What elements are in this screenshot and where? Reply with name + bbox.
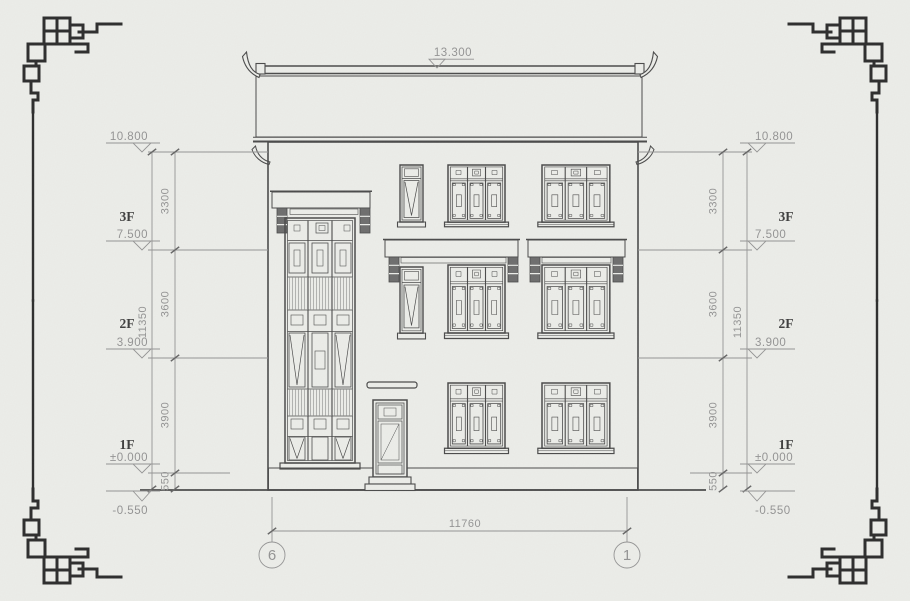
roof-ridge bbox=[260, 66, 640, 74]
svg-text:10.800: 10.800 bbox=[110, 131, 148, 143]
window-1f-center bbox=[445, 383, 509, 454]
entry-step-lower bbox=[365, 484, 415, 491]
floor-label-1f-right: 1F bbox=[779, 437, 794, 452]
floor-label-3f-right: 3F bbox=[779, 209, 794, 224]
elevation-marker-ground-left: -0.550 bbox=[106, 491, 160, 517]
svg-text:7.500: 7.500 bbox=[117, 229, 148, 241]
total-height-dim-left: 11350 bbox=[137, 306, 149, 338]
segment-3600-right: 3600 bbox=[708, 291, 720, 317]
ridge-elevation-value: 13.300 bbox=[434, 47, 472, 59]
facade-wall bbox=[268, 142, 638, 490]
floor-label-2f-right: 2F bbox=[779, 316, 794, 331]
roof bbox=[243, 52, 658, 165]
window-3f-right bbox=[538, 165, 614, 227]
segment-550-left: 550 bbox=[160, 471, 172, 491]
svg-text:-0.550: -0.550 bbox=[112, 505, 148, 517]
elevation-marker-eave-right: 10.800 bbox=[740, 131, 795, 152]
awning-right-bracket-right bbox=[613, 257, 623, 282]
svg-text:7.500: 7.500 bbox=[755, 229, 786, 241]
segment-3900-left: 3900 bbox=[160, 402, 172, 428]
bay-bracket-right bbox=[360, 208, 370, 233]
elevation-marker-1f-right: ±0.000 bbox=[740, 452, 795, 473]
svg-text:±0.000: ±0.000 bbox=[110, 452, 148, 464]
border-corner-ornaments bbox=[24, 18, 886, 583]
segment-3600-left: 3600 bbox=[160, 291, 172, 317]
door-canopy-slab bbox=[367, 382, 417, 388]
elevation-marker-3f-right: 7.500 bbox=[740, 229, 795, 250]
corner-ornament-top-right bbox=[789, 18, 886, 301]
segment-3300-left: 3300 bbox=[160, 188, 172, 214]
floor-label-1f-left: 1F bbox=[120, 437, 135, 452]
svg-text:±0.000: ±0.000 bbox=[755, 452, 793, 464]
total-width-dim: 11760 bbox=[449, 518, 481, 530]
bay-louver-band-lower bbox=[288, 389, 353, 416]
segment-3300-right: 3300 bbox=[708, 188, 720, 214]
svg-text:3.900: 3.900 bbox=[117, 337, 148, 349]
stair-bay bbox=[270, 191, 372, 469]
brick-plinth bbox=[268, 468, 638, 490]
bay-louver-band-upper bbox=[288, 277, 353, 310]
cad-elevation-canvas: 13.300 11350 3300 3600 3900 550 10.800 7… bbox=[0, 0, 910, 601]
awning-center bbox=[385, 240, 518, 257]
windows bbox=[398, 165, 614, 454]
window-3f-center bbox=[445, 165, 509, 227]
floor-label-3f-left: 3F bbox=[120, 209, 135, 224]
window-2f-center bbox=[445, 265, 509, 339]
awning-right bbox=[528, 240, 625, 257]
corner-ornament-bottom-right bbox=[789, 301, 886, 584]
svg-text:3.900: 3.900 bbox=[755, 337, 786, 349]
segment-3900-right: 3900 bbox=[708, 402, 720, 428]
floor-label-2f-left: 2F bbox=[120, 316, 135, 331]
bay-canopy bbox=[272, 192, 370, 208]
elevation-drawing-sheet: 13.300 11350 3300 3600 3900 550 10.800 7… bbox=[0, 0, 910, 601]
dimension-stack-left: 11350 3300 3600 3900 550 10.800 7.500 3.… bbox=[106, 131, 268, 517]
window-3f-narrow bbox=[398, 165, 426, 227]
axis-number-left: 6 bbox=[268, 547, 276, 564]
bay-dentils bbox=[290, 209, 358, 215]
svg-text:-0.550: -0.550 bbox=[755, 505, 791, 517]
ridge-end-block-right bbox=[635, 64, 644, 75]
window-2f-narrow bbox=[398, 267, 426, 339]
entry-door bbox=[365, 382, 417, 491]
awning-right-bracket-left bbox=[530, 257, 540, 282]
window-1f-right bbox=[538, 383, 614, 454]
elevation-marker-2f-right: 3.900 bbox=[740, 337, 795, 358]
roof-tile-field bbox=[256, 76, 642, 137]
window-2f-right bbox=[538, 265, 614, 339]
elevation-marker-eave-left: 10.800 bbox=[106, 131, 160, 152]
dimension-stack-right: 11350 3300 3600 3900 550 10.800 7.500 3.… bbox=[638, 131, 795, 517]
entry-step-upper bbox=[369, 477, 411, 484]
svg-text:10.800: 10.800 bbox=[755, 131, 793, 143]
awning-center-bracket-right bbox=[508, 257, 518, 282]
awning-center-bracket-left bbox=[389, 257, 399, 282]
axis-number-right: 1 bbox=[623, 547, 631, 564]
dimension-bottom: 11760 6 1 bbox=[259, 497, 640, 568]
ridge-end-block-left bbox=[256, 64, 265, 75]
ridge-elevation-marker: 13.300 bbox=[429, 47, 474, 68]
corner-ornament-bottom-left bbox=[24, 301, 121, 584]
segment-550-right: 550 bbox=[708, 471, 720, 491]
total-height-dim-right: 11350 bbox=[732, 306, 744, 338]
corner-ornament-top-left bbox=[24, 18, 121, 301]
elevation-marker-ground-right: -0.550 bbox=[740, 491, 795, 517]
